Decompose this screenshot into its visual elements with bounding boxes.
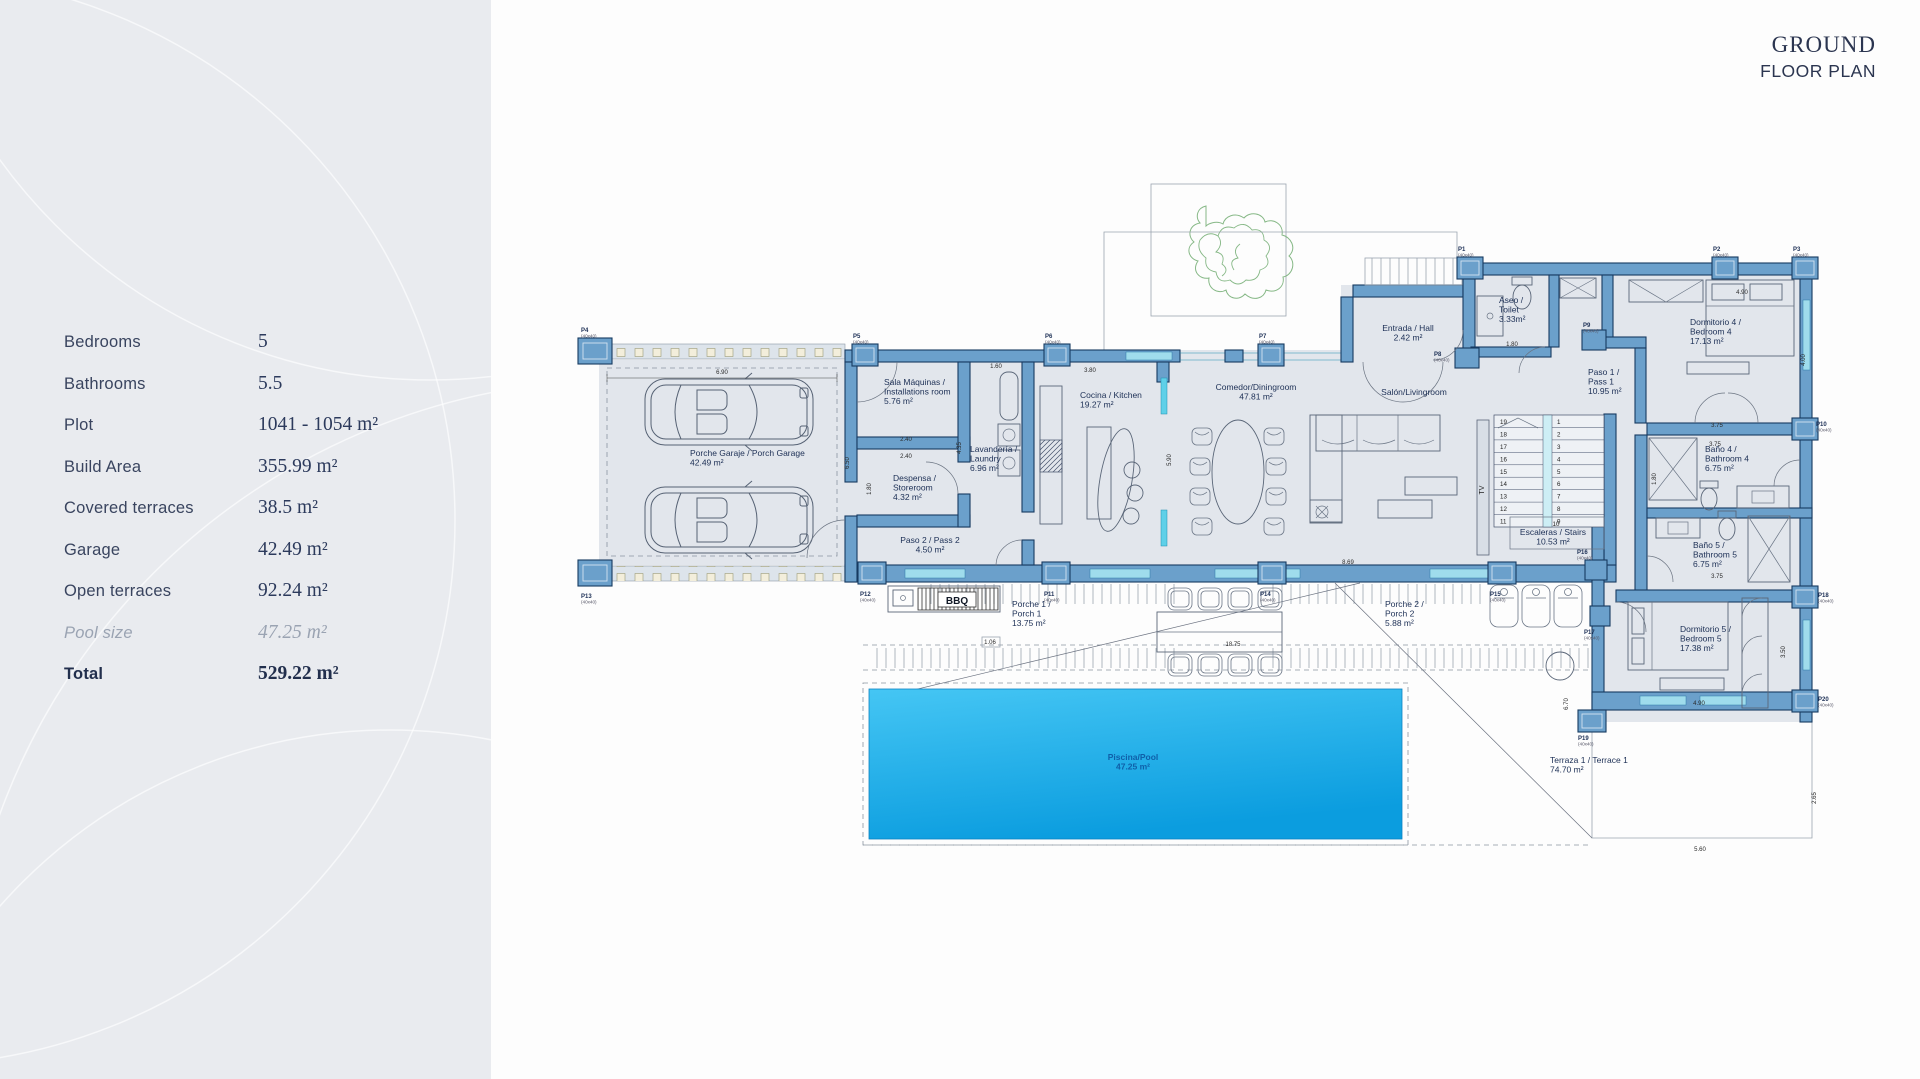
dimension-label: 6.50 <box>845 457 851 469</box>
plan-title-line1: GROUND <box>1760 32 1876 58</box>
stair-number: 3 <box>1557 444 1561 451</box>
dimension-label: 2.65 <box>1812 792 1818 804</box>
pillar-label: P5(40x40) <box>853 334 869 345</box>
spec-row-total: Total529.22 m² <box>64 663 454 687</box>
spec-value: 355.99 m² <box>258 456 338 478</box>
dimension-label: 3.80 <box>1084 368 1096 374</box>
spec-label: Bedrooms <box>64 333 258 352</box>
spec-value: 47.25 m² <box>258 622 327 644</box>
spec-label: Covered terraces <box>64 499 258 518</box>
stair-number: 13 <box>1500 494 1507 501</box>
pillar-label: P12(40x40) <box>860 592 876 603</box>
room-label: Salón/Livingroom <box>1381 387 1447 397</box>
stair-number: 19 <box>1500 419 1507 426</box>
dimension-label: 3.75 <box>1711 423 1723 429</box>
spec-row-covered-terraces: Covered terraces38.5 m² <box>64 497 454 521</box>
spec-label: Plot <box>64 416 258 435</box>
dimension-label: 1.60 <box>990 364 1002 370</box>
stair-number: 9 <box>1557 519 1561 526</box>
stair-number: 14 <box>1500 481 1507 488</box>
pillar-label: P20(40x40) <box>1818 697 1834 708</box>
dimension-label: 18.75 <box>1225 642 1241 648</box>
pillar-label: P7(40x40) <box>1259 334 1275 345</box>
spec-label: Total <box>64 665 258 684</box>
dimension-label: 4.90 <box>1736 290 1748 296</box>
dimension-label: 3.75 <box>1709 442 1721 448</box>
pillar-label: P3(40x40) <box>1793 247 1809 258</box>
dimension-label: 4.00 <box>1801 354 1807 366</box>
spec-label: Build Area <box>64 458 258 477</box>
spec-row-bathrooms: Bathrooms5.5 <box>64 373 454 397</box>
bbq-label: BBQ <box>946 596 968 607</box>
dimension-label: 4.90 <box>1693 701 1705 707</box>
spec-value: 92.24 m² <box>258 580 328 602</box>
sidebar: Bedrooms5Bathrooms5.5Plot1041 - 1054 m²B… <box>0 0 491 1079</box>
spec-value: 5 <box>258 331 268 353</box>
spec-label: Bathrooms <box>64 375 258 394</box>
dimension-label: 6.70 <box>1564 698 1570 710</box>
tv-label: TV <box>1479 485 1486 494</box>
spec-value: 1041 - 1054 m² <box>258 414 378 436</box>
pillar-label: P2(40x40) <box>1713 247 1729 258</box>
dimension-label: 1.80 <box>1506 342 1518 348</box>
pillar-label: P18(40x40) <box>1818 593 1834 604</box>
spec-value: 38.5 m² <box>258 497 318 519</box>
stair-number: 11 <box>1500 519 1507 526</box>
dimension-label: 3.75 <box>1711 574 1723 580</box>
spec-value: 42.49 m² <box>258 539 328 561</box>
spec-row-bedrooms: Bedrooms5 <box>64 331 454 355</box>
stair-number: 7 <box>1557 494 1561 501</box>
pillar-label: P6(40x40) <box>1045 334 1061 345</box>
spec-row-build-area: Build Area355.99 m² <box>64 456 454 480</box>
stair-number: 5 <box>1557 469 1561 476</box>
bbq-counter <box>888 586 1000 612</box>
dimension-label: 2.40 <box>900 437 912 443</box>
stair-number: 16 <box>1500 456 1507 463</box>
dimension-label: 5.60 <box>1694 847 1706 853</box>
dimension-label: 3.50 <box>1781 646 1787 658</box>
stair-number: 15 <box>1500 469 1507 476</box>
stair-number: 2 <box>1557 431 1561 438</box>
dimension-label: 1.80 <box>867 483 873 495</box>
spec-row-plot: Plot1041 - 1054 m² <box>64 414 454 438</box>
spec-label: Garage <box>64 541 258 560</box>
spec-row-garage: Garage42.49 m² <box>64 539 454 563</box>
pillar-label: P15(40x40) <box>1490 592 1506 603</box>
pillar-label: P4(40x40) <box>581 328 597 339</box>
tree-sketch <box>1151 184 1293 316</box>
room-label: Porche 1 /Porch 113.75 m² <box>1012 599 1051 628</box>
stair-number: 12 <box>1500 506 1507 513</box>
plan-title: GROUND FLOOR PLAN <box>1760 32 1876 82</box>
dimension-label: 5.90 <box>1167 454 1173 466</box>
spec-row-open-terraces: Open terraces92.24 m² <box>64 580 454 604</box>
stair-number: 4 <box>1557 456 1561 463</box>
spec-label: Open terraces <box>64 582 258 601</box>
dimension-label: 1.06 <box>984 640 996 646</box>
pillar-label: P10(40x40) <box>1816 422 1832 433</box>
room-label: Porche 2 /Porch 25.88 m² <box>1385 599 1424 628</box>
stair-number: 17 <box>1500 444 1507 451</box>
spec-list: Bedrooms5Bathrooms5.5Plot1041 - 1054 m²B… <box>64 331 454 705</box>
pillar-label: P1(40x40) <box>1458 247 1474 258</box>
stair-number: 8 <box>1557 506 1561 513</box>
spec-row-pool-size: Pool size47.25 m² <box>64 622 454 646</box>
pillar-label: P13(40x40) <box>581 594 597 605</box>
dimension-label: 8.69 <box>1342 560 1354 566</box>
dimension-label: 4.35 <box>957 442 963 454</box>
stair-number: 1 <box>1557 419 1561 426</box>
stair-number: 6 <box>1557 481 1561 488</box>
dimension-label: 1.80 <box>1652 473 1658 485</box>
stair-number: 18 <box>1500 431 1507 438</box>
plan-title-line2: FLOOR PLAN <box>1760 61 1876 82</box>
spec-value: 529.22 m² <box>258 663 339 685</box>
dimension-label: 6.90 <box>716 370 728 376</box>
dimension-label: 2.40 <box>900 454 912 460</box>
spec-value: 5.5 <box>258 373 282 395</box>
spec-label: Pool size <box>64 624 258 643</box>
room-label: Terraza 1 / Terrace 174.70 m² <box>1550 755 1628 775</box>
